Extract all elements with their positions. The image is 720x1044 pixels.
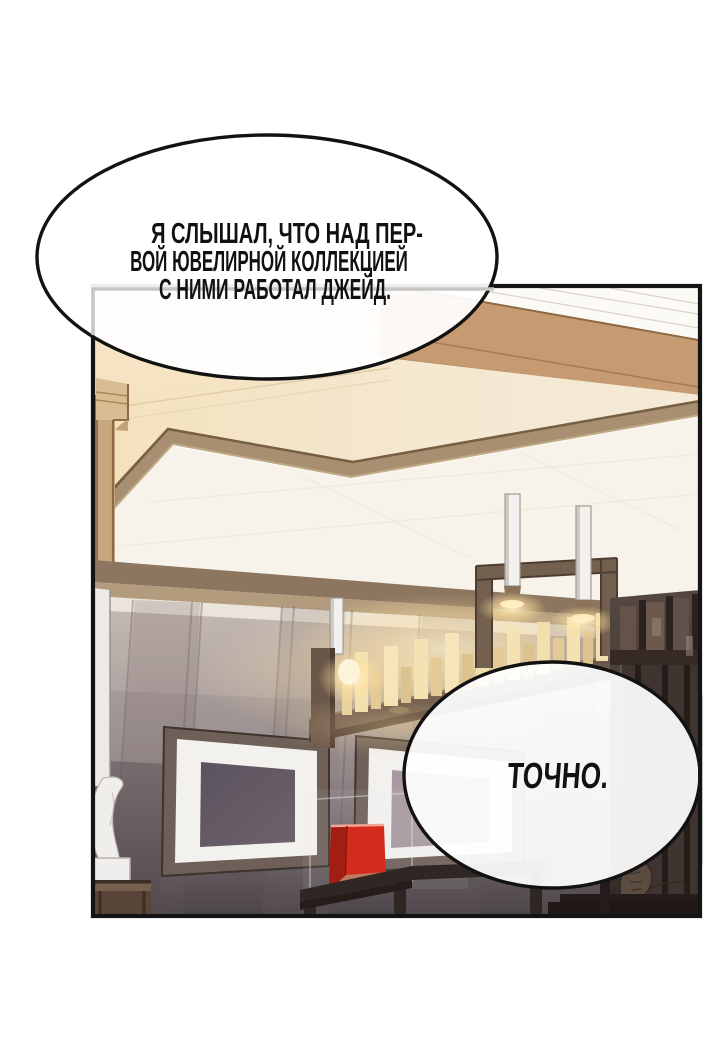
- svg-text:ТОЧНО.: ТОЧНО.: [506, 755, 610, 796]
- svg-text:С НИМИ РАБОТАЛ ДЖЕЙД.: С НИМИ РАБОТАЛ ДЖЕЙД.: [159, 272, 391, 306]
